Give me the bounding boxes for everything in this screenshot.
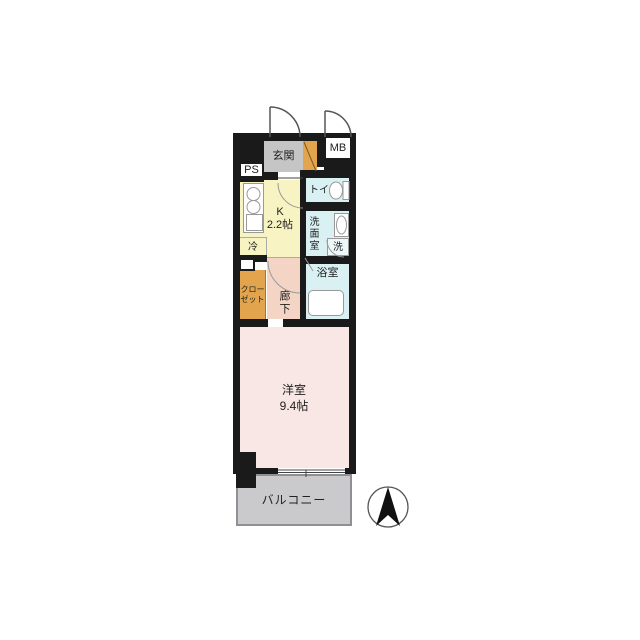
washbasin	[334, 213, 349, 237]
hallway-label: 廊下	[277, 290, 290, 316]
bathroom-label: 浴室	[317, 267, 339, 280]
kitchen-label: K 2.2帖	[262, 206, 298, 232]
main-room: 洋室 9.4帖	[239, 327, 349, 468]
washer-label: 洗	[333, 242, 343, 253]
floor-plan: 玄関 K 2.2帖 冷 トイレ 洗面室 洗 浴室 クロー ゼット 廊下 洋室 9…	[0, 0, 640, 640]
wall	[283, 319, 356, 327]
entrance-label: 玄関	[273, 150, 295, 163]
toilet-room: トイレ	[306, 178, 349, 202]
fridge-space: 冷	[240, 237, 267, 257]
pipe-space-label: PS	[244, 164, 259, 176]
toilet-label: トイレ	[309, 185, 339, 196]
wall	[345, 468, 356, 474]
pipe-space-box: PS	[239, 162, 264, 178]
closet-label-line2: ゼット	[241, 295, 265, 305]
wall	[300, 178, 306, 327]
hallway: 廊下	[267, 257, 300, 319]
fridge-label: 冷	[248, 242, 258, 253]
entrance-room: 玄関	[264, 141, 303, 172]
shaft-box	[239, 258, 255, 271]
kitchen-sink	[246, 214, 263, 231]
bathtub	[308, 290, 344, 316]
shoe-cabinet	[303, 141, 317, 172]
wall	[306, 202, 356, 211]
north-arrow-icon	[368, 487, 408, 527]
washer-space: 洗	[327, 238, 349, 256]
wall	[233, 133, 240, 474]
balcony-label: バルコニー	[262, 492, 327, 508]
kitchen-size-label: 2.2帖	[262, 219, 298, 232]
wall	[306, 256, 356, 264]
wall	[300, 170, 356, 178]
wall	[349, 133, 356, 474]
closet-label-line1: クロー	[241, 285, 265, 295]
kitchen-name-label: K	[262, 206, 298, 219]
wall-pillar	[236, 452, 256, 488]
meter-box: MB	[324, 136, 352, 160]
main-room-name-label: 洋室	[282, 382, 306, 398]
main-room-size-label: 9.4帖	[280, 398, 309, 414]
closet: クロー ゼット	[240, 270, 266, 319]
wall	[317, 133, 324, 167]
washroom-label: 洗面室	[307, 216, 318, 252]
meter-box-label: MB	[330, 142, 347, 154]
wall	[233, 319, 268, 327]
